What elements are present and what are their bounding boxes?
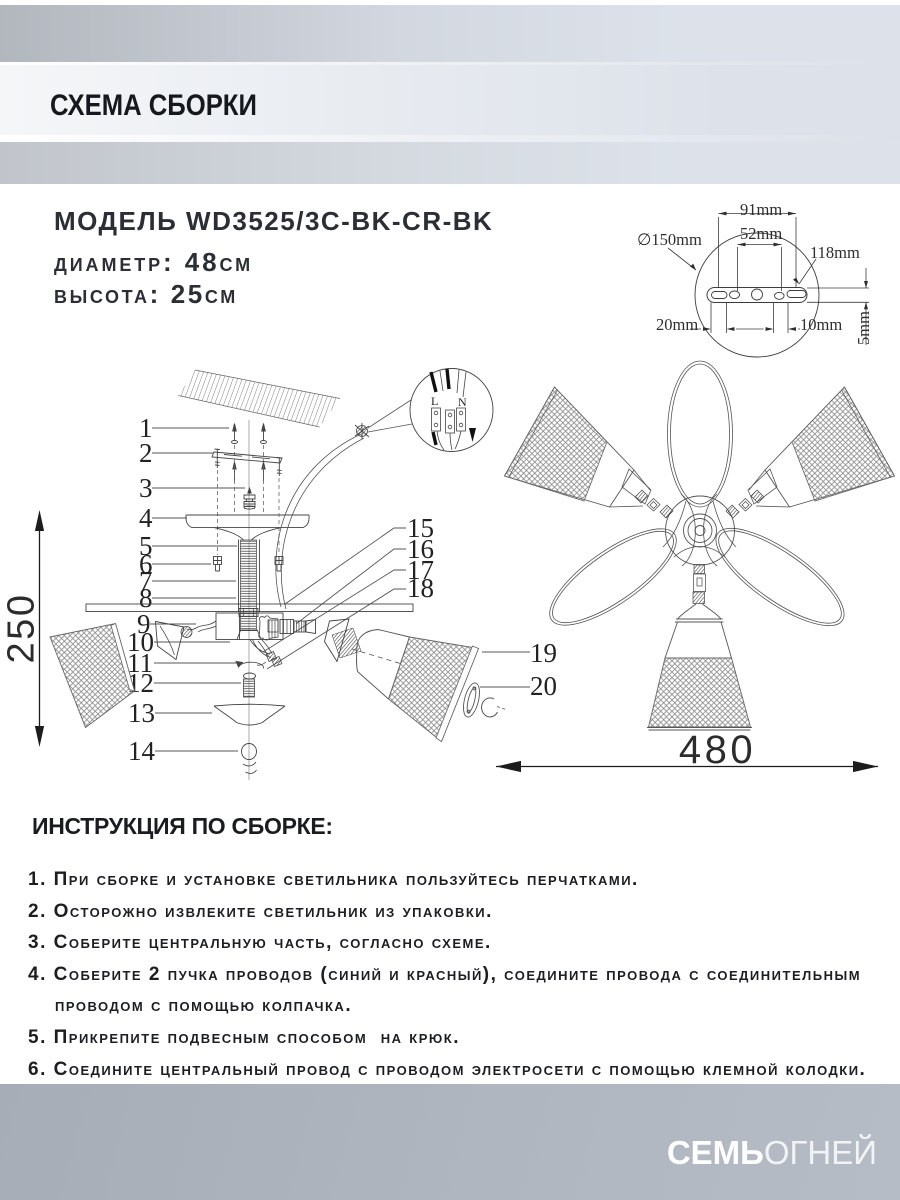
svg-text:∅150mm: ∅150mm (637, 230, 702, 249)
svg-text:3: 3 (139, 473, 153, 503)
svg-text:20: 20 (530, 671, 557, 701)
svg-text:18: 18 (407, 573, 434, 603)
svg-text:52mm: 52mm (740, 224, 782, 243)
svg-text:20mm: 20mm (656, 315, 698, 334)
svg-text:13: 13 (128, 698, 155, 728)
svg-text:480: 480 (679, 728, 756, 772)
svg-text:19: 19 (530, 638, 557, 668)
svg-text:2: 2 (139, 438, 153, 468)
svg-text:91mm: 91mm (740, 200, 782, 219)
svg-text:14: 14 (128, 736, 156, 766)
svg-text:L: L (431, 394, 438, 408)
svg-text:N: N (458, 395, 467, 409)
svg-text:4: 4 (139, 503, 153, 533)
svg-text:118mm: 118mm (810, 243, 860, 262)
svg-text:10mm: 10mm (800, 315, 842, 334)
svg-text:5mm: 5mm (854, 311, 873, 345)
svg-text:250: 250 (1, 593, 43, 664)
